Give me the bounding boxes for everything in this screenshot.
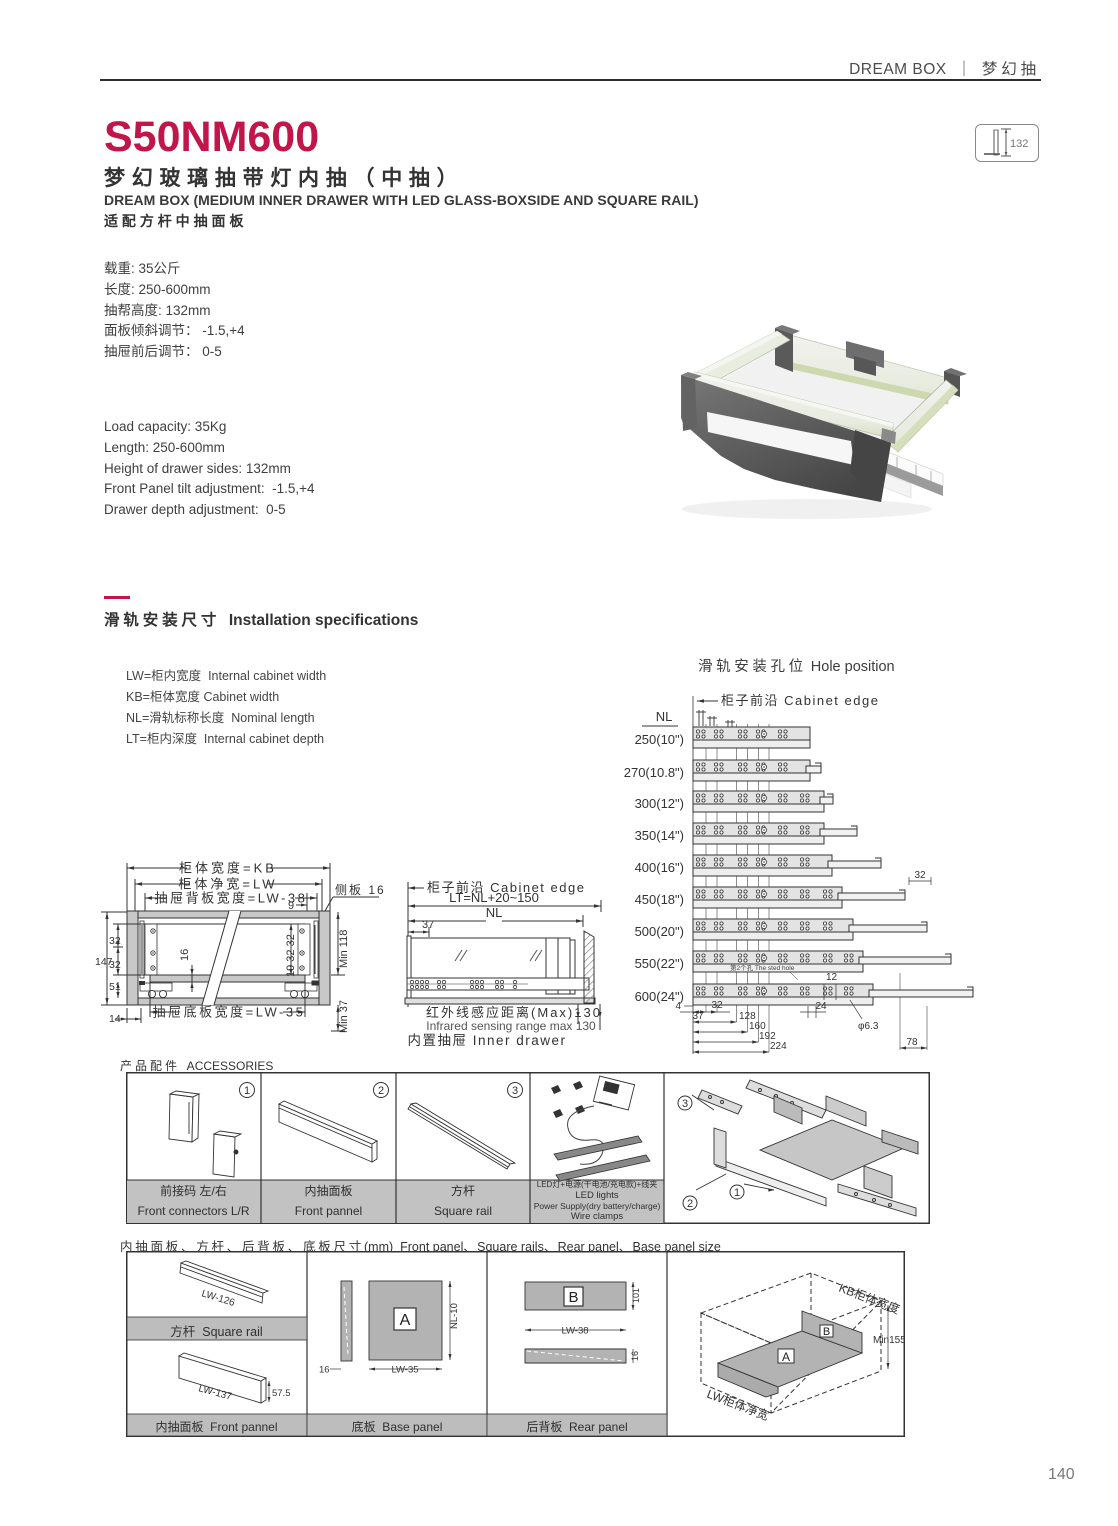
- svg-text:Infrared sensing range max 130: Infrared sensing range max 130: [426, 1019, 596, 1033]
- svg-text:450(18"): 450(18"): [635, 892, 684, 907]
- svg-text:B: B: [823, 1326, 830, 1338]
- svg-text:32: 32: [109, 959, 121, 971]
- svg-text:32: 32: [711, 1000, 723, 1011]
- svg-text:A: A: [782, 1350, 790, 1364]
- svg-text:37: 37: [422, 919, 434, 931]
- svg-text:柜体宽度=KB: 柜体宽度=KB: [179, 861, 277, 876]
- svg-text:1: 1: [244, 1085, 250, 1097]
- svg-text:3: 3: [682, 1098, 688, 1110]
- svg-text:57.5: 57.5: [272, 1388, 291, 1399]
- svg-text:32: 32: [914, 870, 926, 881]
- svg-text:350(14"): 350(14"): [635, 828, 684, 843]
- svg-text:400(16"): 400(16"): [635, 860, 684, 875]
- svg-text:抽屉背板宽度=LW-38: 抽屉背板宽度=LW-38: [155, 891, 308, 906]
- svg-text:2: 2: [687, 1198, 693, 1210]
- svg-text:9: 9: [288, 900, 294, 912]
- svg-text:550(22"): 550(22"): [635, 956, 684, 971]
- svg-text:1: 1: [734, 1187, 740, 1199]
- svg-text:LW-35: LW-35: [391, 1365, 418, 1376]
- svg-text:500(20"): 500(20"): [635, 924, 684, 939]
- svg-text:12: 12: [826, 972, 838, 983]
- svg-text:侧板 16: 侧板 16: [335, 883, 385, 897]
- svg-text:LW-38: LW-38: [561, 1326, 588, 1337]
- svg-text:32: 32: [109, 935, 121, 947]
- svg-text:柜体净宽=LW: 柜体净宽=LW: [178, 877, 277, 892]
- svg-text:柜子前沿 Cabinet edge: 柜子前沿 Cabinet edge: [721, 693, 879, 708]
- svg-text:250(10"): 250(10"): [635, 732, 684, 747]
- svg-text:224: 224: [770, 1041, 787, 1052]
- svg-text:A: A: [400, 1312, 411, 1329]
- svg-text:19 32 32: 19 32 32: [285, 934, 297, 977]
- svg-text:16: 16: [319, 1365, 330, 1376]
- svg-text:4: 4: [675, 1001, 681, 1012]
- svg-text:Min 118: Min 118: [338, 930, 350, 968]
- svg-text:24: 24: [815, 1001, 827, 1012]
- svg-text:37: 37: [692, 1011, 704, 1022]
- svg-text:16: 16: [630, 1351, 640, 1361]
- svg-text:B: B: [568, 1289, 578, 1306]
- svg-text:NL: NL: [656, 709, 673, 724]
- svg-text:2: 2: [378, 1085, 384, 1097]
- svg-text:16: 16: [179, 949, 191, 961]
- svg-text:51: 51: [109, 981, 121, 993]
- svg-text:内置抽屉 Inner drawer: 内置抽屉 Inner drawer: [407, 1033, 566, 1048]
- svg-text:抽屉底板宽度=LW-35: 抽屉底板宽度=LW-35: [153, 1005, 306, 1020]
- svg-text:132: 132: [1010, 138, 1028, 150]
- svg-text:Min155: Min155: [873, 1335, 905, 1346]
- svg-text:LT=NL+20~150: LT=NL+20~150: [449, 890, 539, 905]
- svg-text:φ6.3: φ6.3: [858, 1021, 879, 1032]
- svg-text:Min 37: Min 37: [338, 1000, 350, 1033]
- svg-text:101: 101: [631, 1288, 641, 1303]
- svg-text:270(10.8"): 270(10.8"): [624, 765, 684, 780]
- svg-text:3: 3: [512, 1085, 518, 1097]
- svg-text:红外线感应距离(Max)130: 红外线感应距离(Max)130: [426, 1005, 602, 1020]
- svg-text:78: 78: [906, 1037, 918, 1048]
- svg-text:NL: NL: [486, 905, 503, 920]
- svg-text:NL-10: NL-10: [449, 1303, 460, 1329]
- svg-text:300(12"): 300(12"): [635, 796, 684, 811]
- svg-text:14: 14: [109, 1013, 121, 1025]
- svg-text:第2个孔 The sted hole: 第2个孔 The sted hole: [730, 963, 795, 972]
